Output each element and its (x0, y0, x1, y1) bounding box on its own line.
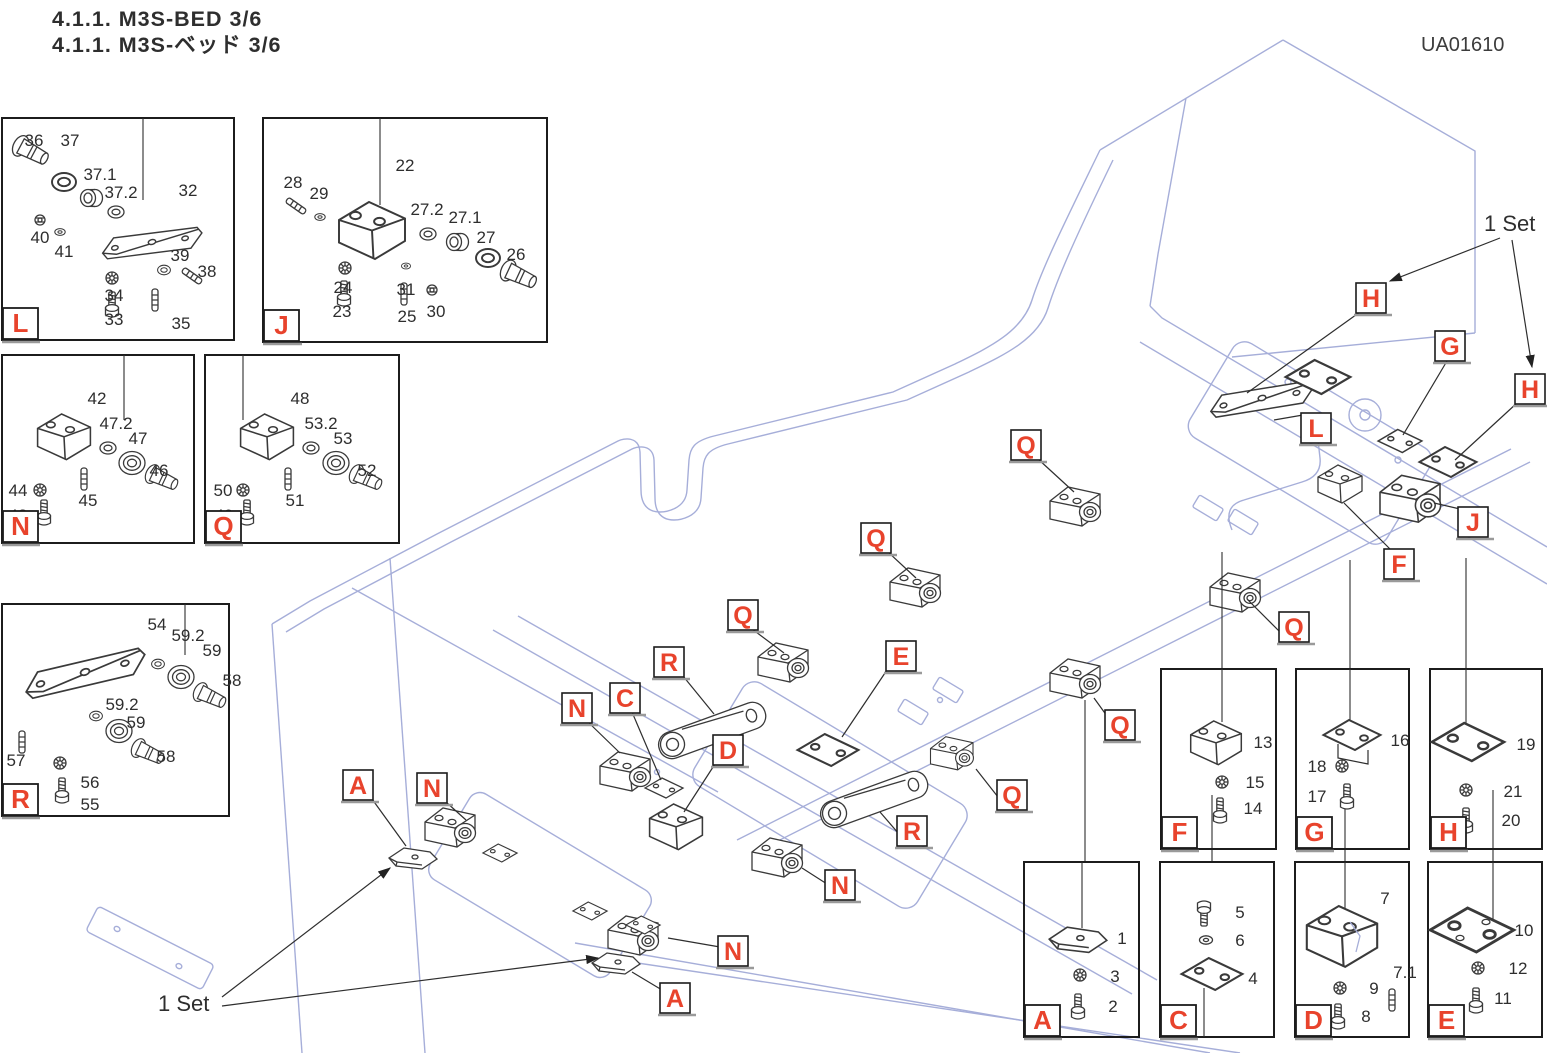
ref-label-R2: R (895, 816, 933, 848)
callout-27: 27 (477, 228, 496, 247)
page-title-en: 4.1.1. M3S-BED 3/6 (52, 7, 262, 31)
ref-label-Q2: Q (859, 523, 897, 555)
svg-text:A: A (666, 985, 684, 1013)
ref-label-A1: A (341, 770, 379, 802)
ref-label-Q3: Q (1277, 612, 1315, 644)
part-link-R1 (655, 699, 769, 763)
detail-box-C: 5 6 4 C (1160, 862, 1274, 1039)
callout-32: 32 (179, 181, 198, 200)
box-tab-H: H (1439, 817, 1458, 847)
callout-29: 29 (310, 184, 329, 203)
callout-7.1: 7.1 (1393, 963, 1417, 982)
part-plate-E (798, 734, 859, 766)
callout-34: 34 (105, 286, 124, 305)
ref-label-A2: A (658, 983, 696, 1015)
box-tab-C: C (1169, 1005, 1188, 1035)
detail-box-L: 36 37 37.1 37.2 32 40 41 39 38 34 33 35 … (2, 118, 234, 342)
callout-45: 45 (79, 491, 98, 510)
callout-1: 1 (1117, 929, 1126, 948)
box-tab-A: A (1033, 1005, 1052, 1035)
callout-24: 24 (334, 278, 353, 297)
ref-label-F: F (1382, 549, 1420, 581)
part-bracket-G (1378, 430, 1422, 453)
part-bearing-block-N3 (752, 838, 803, 877)
detail-box-F: 13 15 14 G F (1161, 669, 1276, 851)
callout-20: 20 (1502, 811, 1521, 830)
set-note-bottom: 1 Set (158, 991, 209, 1016)
callout-57: 57 (7, 751, 26, 770)
callout-5: 5 (1235, 903, 1244, 922)
ref-label-N2: N (415, 773, 453, 805)
svg-text:F: F (1391, 551, 1406, 579)
callout-55: 55 (81, 795, 100, 814)
callout-30: 30 (427, 302, 446, 321)
callout-22: 22 (396, 156, 415, 175)
bed-frame-wireframe (86, 40, 1547, 1053)
callout-6: 6 (1235, 931, 1244, 950)
svg-text:R: R (660, 649, 678, 677)
svg-text:H: H (1521, 376, 1539, 404)
set-arrows (222, 238, 1532, 1006)
callout-9: 9 (1369, 979, 1378, 998)
callout-48: 48 (291, 389, 310, 408)
part-shim-plate (483, 844, 517, 862)
detail-box-Q: 48 53.2 53 52 50 51 49 Q (205, 355, 399, 545)
ref-label-D: D (711, 735, 749, 767)
ref-label-G: G (1433, 331, 1471, 363)
callout-33: 33 (105, 310, 124, 329)
part-bearing-block-Q4 (758, 643, 809, 682)
svg-text:R: R (903, 818, 921, 846)
detail-box-N: 42 47.2 47 46 44 45 43 N (2, 355, 194, 545)
callout-37.2: 37.2 (104, 183, 137, 202)
svg-text:H: H (1362, 285, 1380, 313)
svg-text:J: J (1466, 509, 1480, 537)
callout-7: 7 (1380, 889, 1389, 908)
callout-46: 46 (150, 461, 169, 480)
callout-10: 10 (1515, 921, 1534, 940)
part-bearing-block-Q6 (931, 737, 974, 770)
ref-label-C: C (608, 683, 646, 715)
callout-23: 23 (333, 302, 352, 321)
callout-59.2: 59.2 (171, 626, 204, 645)
part-plate-C (645, 778, 683, 798)
box-tab-L: L (13, 308, 29, 338)
ref-label-Q6: Q (995, 780, 1033, 812)
detail-box-E: 10 12 11 E (1428, 862, 1542, 1039)
box-tab-R: R (11, 784, 30, 814)
callout-26: 26 (507, 245, 526, 264)
box-tab-Q: Q (213, 511, 233, 541)
callout-35: 35 (172, 314, 191, 333)
callout-14: 14 (1244, 799, 1263, 818)
callout-37: 37 (61, 131, 80, 150)
ref-label-N4: N (716, 936, 754, 968)
box-tab-G: G (1304, 817, 1324, 847)
detail-box-D: 7 9 7.1 8 D (1295, 862, 1417, 1039)
part-bearing-block-N2 (425, 808, 476, 847)
ref-label-H2: H (1513, 374, 1547, 406)
main-reference-labels: H G H L J F Q Q Q Q Q Q R E N C D A N R … (341, 283, 1547, 1015)
detail-box-A: 1 3 2 A (1024, 862, 1139, 1039)
callout-18: 18 (1308, 757, 1327, 776)
ref-label-N1: N (560, 693, 598, 725)
callout-31: 31 (397, 280, 416, 299)
part-bearing-block-Q5 (1050, 659, 1101, 698)
svg-text:G: G (1440, 333, 1459, 361)
callout-41: 41 (55, 242, 74, 261)
part-block-D (650, 804, 703, 850)
page-title-jp: 4.1.1. M3S-ベッド 3/6 (52, 33, 282, 57)
callout-15: 15 (1246, 773, 1265, 792)
part-bearing-block-Q3 (1210, 573, 1261, 612)
callout-44: 44 (9, 481, 28, 500)
box-tab-N: N (11, 511, 30, 541)
parts-catalog-page: 36 37 37.1 37.2 32 40 41 39 38 34 33 35 … (0, 0, 1547, 1053)
callout-53: 53 (334, 429, 353, 448)
svg-text:N: N (724, 938, 742, 966)
callout-27.1: 27.1 (448, 208, 481, 227)
callout-3: 3 (1110, 967, 1119, 986)
svg-text:L: L (1308, 415, 1323, 443)
detail-box-J: 28 29 22 27.2 27.1 27 26 24 23 31 25 30 … (263, 118, 547, 344)
ref-label-Q4: Q (726, 600, 764, 632)
part-bearing-block-N1 (600, 752, 651, 791)
callout-21: 21 (1504, 782, 1523, 801)
svg-text:N: N (568, 695, 586, 723)
callout-37.1: 37.1 (83, 165, 116, 184)
part-plate-H2 (1420, 447, 1477, 477)
parts-diagram-canvas: 36 37 37.1 37.2 32 40 41 39 38 34 33 35 … (0, 0, 1547, 1053)
callout-58: 58 (223, 671, 242, 690)
callout-11: 11 (1494, 989, 1512, 1008)
callout-38: 38 (198, 262, 217, 281)
ref-label-N3: N (823, 870, 861, 902)
callout-50: 50 (214, 481, 233, 500)
callout-8: 8 (1361, 1007, 1370, 1026)
set-note-top: 1 Set (1484, 211, 1535, 236)
svg-text:A: A (349, 772, 367, 800)
ref-label-H1: H (1354, 283, 1392, 315)
ref-label-E: E (884, 641, 922, 673)
svg-text:C: C (616, 685, 634, 713)
detail-box-R: 54 59.2 59 58 59.2 59 58 57 56 55 R (2, 604, 241, 818)
callout-54: 54 (148, 615, 167, 634)
ref-label-R1: R (652, 647, 690, 679)
callout-42: 42 (88, 389, 107, 408)
svg-text:N: N (423, 775, 441, 803)
box-tab-F: F (1172, 817, 1188, 847)
box-tab-E: E (1438, 1005, 1455, 1035)
callout-27.2: 27.2 (410, 200, 443, 219)
ref-label-L: L (1299, 413, 1337, 445)
box-tab-D: D (1304, 1005, 1323, 1035)
detail-hanger-lines (1085, 552, 1493, 862)
callout-56: 56 (81, 773, 100, 792)
detail-box-G: 16 18 17 G (1296, 669, 1409, 851)
ref-label-J: J (1456, 507, 1494, 539)
drawing-number: UA01610 (1421, 34, 1504, 56)
part-shim-plate (573, 902, 607, 920)
callout-59: 59 (203, 641, 222, 660)
callout-2: 2 (1108, 997, 1117, 1016)
svg-text:N: N (831, 872, 849, 900)
svg-text:Q: Q (1002, 782, 1021, 810)
part-bearing-block-Q2 (890, 568, 941, 607)
callout-39: 39 (171, 246, 190, 265)
callout-28: 28 (284, 173, 303, 192)
callout-58b: 58 (157, 747, 176, 766)
callout-47: 47 (129, 429, 148, 448)
svg-text:Q: Q (1284, 614, 1303, 642)
callout-36: 36 (25, 131, 44, 150)
callout-17: 17 (1308, 787, 1327, 806)
svg-text:D: D (719, 737, 737, 765)
callout-51: 51 (286, 491, 305, 510)
svg-text:Q: Q (866, 525, 885, 553)
callout-25: 25 (398, 307, 417, 326)
callout-40: 40 (31, 228, 50, 247)
callout-19: 19 (1517, 735, 1536, 754)
ref-label-Q5: Q (1103, 710, 1141, 742)
svg-text:E: E (893, 643, 910, 671)
callout-52: 52 (358, 461, 377, 480)
callout-59b: 59 (127, 713, 146, 732)
callout-12: 12 (1509, 959, 1528, 978)
svg-text:Q: Q (1110, 712, 1129, 740)
callout-59.2b: 59.2 (105, 695, 138, 714)
svg-text:Q: Q (733, 602, 752, 630)
assembled-parts (389, 360, 1477, 974)
detail-box-H: 19 21 20 H (1430, 669, 1542, 851)
svg-text:Q: Q (1016, 432, 1035, 460)
part-bearing-block-Q1 (1050, 487, 1101, 526)
part-stopper-A2 (592, 953, 640, 974)
callout-4: 4 (1248, 969, 1257, 988)
callout-16: 16 (1391, 731, 1410, 750)
box-tab-J: J (274, 310, 288, 340)
ref-label-Q1: Q (1009, 430, 1047, 462)
part-bearing-block-J (1380, 475, 1441, 522)
callout-13: 13 (1254, 733, 1273, 752)
